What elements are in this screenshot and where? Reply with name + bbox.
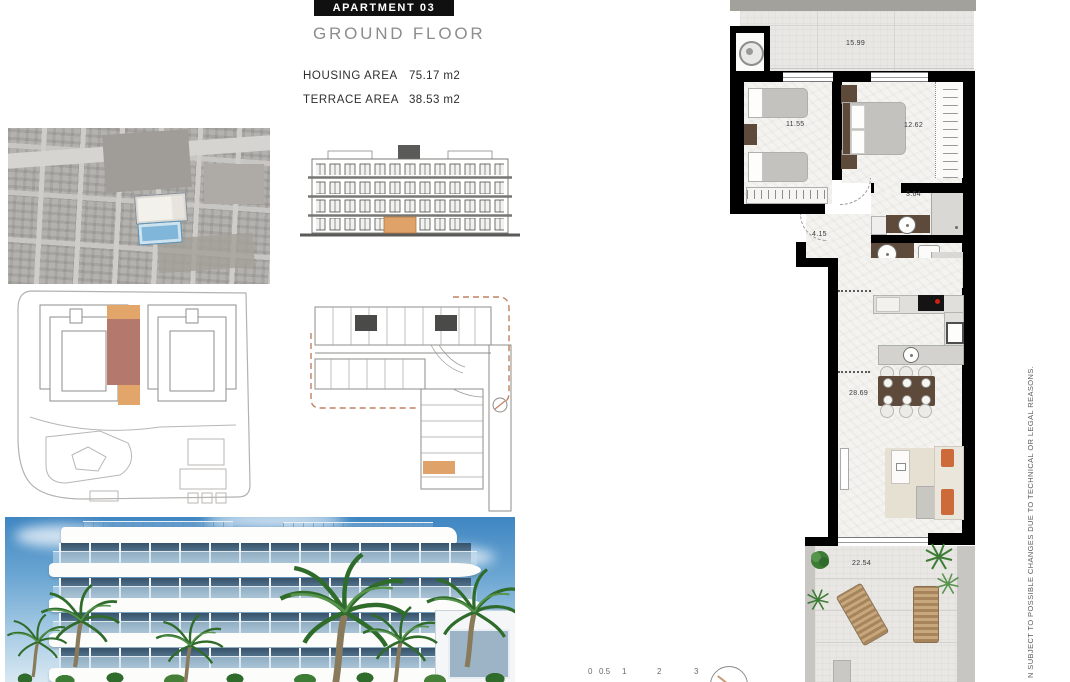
unit-highlight-core [107, 319, 140, 385]
wall-bedroom1-south [730, 204, 825, 214]
unit-highlight-elevation [384, 217, 416, 233]
cooktop-icon [918, 295, 944, 311]
nightstand [744, 124, 757, 145]
site-plan [10, 287, 258, 513]
vacant-lot [102, 129, 192, 193]
scale-tick: 1 [622, 667, 626, 676]
kitchen-island [878, 345, 964, 365]
wall-living-south-left [805, 537, 838, 546]
palm-plant-icon [924, 542, 954, 572]
wall-living-west [828, 258, 838, 538]
area-boundary-dots [838, 371, 870, 373]
bedroom1-area-label: 11.55 [786, 121, 805, 128]
twin-bed-2 [748, 152, 808, 182]
terrace-top-area-label: 15.99 [846, 40, 865, 47]
living-area-label: 28.69 [849, 390, 868, 397]
apartment-title: APARTMENT 03 [314, 0, 454, 16]
shower-1 [931, 193, 963, 235]
bedroom2-window [871, 72, 928, 82]
dining-chair [918, 404, 932, 418]
scale-bar: 0 0.5 1 2 3 [585, 667, 715, 682]
terrace-area-value: 38.53 m2 [409, 94, 460, 106]
tv-bench [840, 448, 849, 490]
elevation-floor-2 [316, 199, 504, 213]
scale-tick: 2 [657, 667, 661, 676]
double-bed [842, 102, 906, 155]
plant-icon [808, 548, 832, 572]
palm-plant-icon [806, 588, 830, 612]
city-block [204, 164, 264, 204]
building-elevation [298, 143, 522, 243]
twin-bed-1 [748, 88, 808, 118]
wall-west [730, 71, 744, 214]
door-arc-entrance [800, 214, 827, 241]
aerial-photo [8, 128, 270, 284]
wall-bath-divider [871, 235, 962, 243]
community-pool [137, 220, 182, 245]
unit-highlight-entry [118, 385, 140, 405]
door-arc-bedroom2 [840, 178, 871, 205]
wardrobe-bedroom1 [746, 187, 828, 204]
wardrobe-bedroom2 [935, 82, 963, 178]
bath1-cabinet [871, 216, 887, 235]
sun-lounger [913, 586, 939, 643]
dining-chair [880, 404, 894, 418]
building-render [5, 517, 515, 682]
terrace-area-label: TERRACE AREA [303, 94, 399, 106]
stair-bulkhead [398, 145, 420, 159]
elevation-floor-3 [316, 180, 504, 194]
bedroom1-window [783, 72, 833, 82]
floor-plan: 15.99 11.55 12. [728, 0, 978, 682]
floor-subtitle: GROUND FLOOR [313, 24, 485, 44]
render-building [53, 527, 477, 682]
wall-north [730, 71, 975, 82]
dining-chair [899, 404, 913, 418]
terrace-top-wall [730, 0, 976, 11]
unit-highlight-top [107, 305, 140, 319]
render-floor-4 [53, 543, 477, 577]
bathroom1-area-label: 3.64 [906, 191, 921, 198]
sink-icon [903, 347, 919, 363]
render-floor-3 [53, 578, 477, 612]
scale-tick: 3 [694, 667, 698, 676]
disclaimer-text: N SUBJECT TO POSSIBLE CHANGES DUE TO TEC… [1026, 58, 1035, 678]
housing-area-value: 75.17 m2 [409, 70, 460, 82]
elevation-floor-4 [316, 161, 504, 175]
bath1-door-opening [874, 183, 901, 193]
terrace-step [833, 660, 851, 682]
oven-icon [946, 322, 964, 344]
scale-tick: 0.5 [599, 667, 610, 676]
plan-sheet: APARTMENT 03 GROUND FLOOR HOUSING AREA 7… [0, 0, 1070, 682]
roof-parapet [61, 527, 457, 543]
washing-machine-icon [736, 33, 764, 72]
scale-tick: 0 [588, 667, 592, 676]
garden-shrubs [5, 667, 515, 682]
unit-highlight-keyplan [423, 461, 455, 474]
terrace-bottom-area-label: 22.54 [852, 560, 871, 567]
sofa [934, 446, 964, 520]
dining-table [878, 376, 935, 406]
housing-area-label: HOUSING AREA [303, 70, 398, 82]
palm-plant-icon [936, 572, 960, 596]
key-plan [303, 281, 518, 513]
area-boundary-dots [838, 290, 871, 292]
coffee-table [891, 450, 910, 484]
render-floor-2 [53, 613, 477, 647]
bedroom2-area-label: 12.62 [904, 122, 923, 129]
sink-icon [898, 216, 916, 234]
